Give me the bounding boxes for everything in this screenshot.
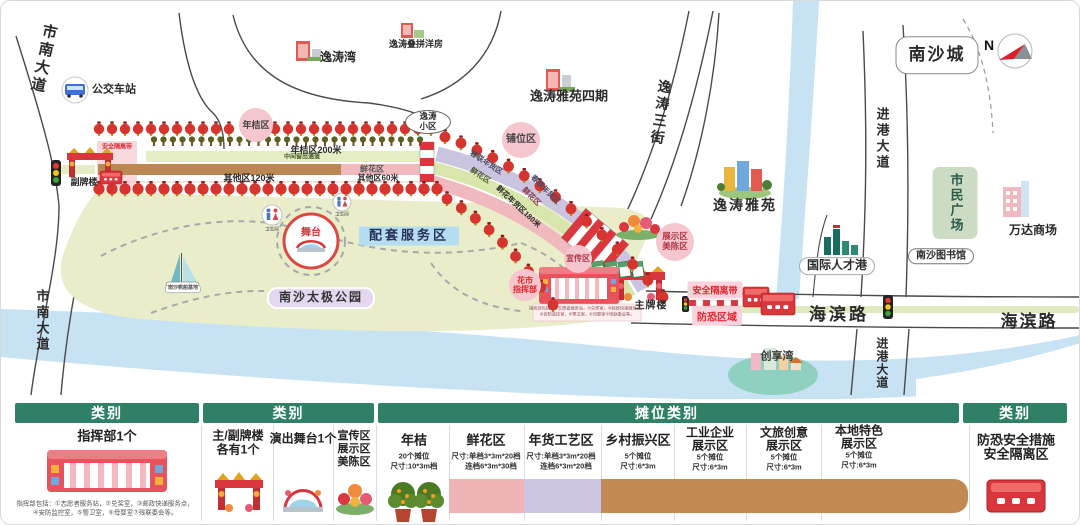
legend-header-2: 类别 — [203, 403, 374, 423]
legend-header-1: 类别 — [15, 403, 199, 423]
legend-note-line1: 指挥部包括：①志愿者服务站，②兑奖室，③邮政快递服务点， — [17, 499, 194, 508]
safety-belt-label-west: 安全隔离带 — [102, 145, 132, 152]
flower-market-map-page: 市南大道 市南大道 逸涛三街 进港大道 进港大道 海滨路 海滨路 公交车站 逸涛… — [0, 0, 1080, 525]
compass-n-label: N — [984, 37, 994, 53]
hq-note-line2: ④安防监控室，⑤警卫室，⑥母婴室⑦残联委会等。 — [540, 313, 635, 318]
legend-stall-flower-title: 鲜花区 — [466, 430, 505, 449]
publicity-zone-circle: 宣传区 — [564, 245, 592, 273]
talent-port-label: 国际人才港 — [799, 257, 875, 275]
wanda-mall-label: 万达商场 — [1009, 224, 1057, 238]
river-north — [776, 1, 819, 299]
legend-divider — [376, 425, 377, 521]
bus-station-label: 公交车站 — [92, 84, 136, 97]
legend-stall-rural-line2: 尺寸:6*3m — [620, 461, 655, 472]
striped-barrier-west — [420, 142, 434, 190]
secondary-archway-label: 副牌楼 — [70, 177, 97, 187]
legend-zones-line3: 美陈区 — [338, 453, 371, 469]
hq-circle: 花市 指挥部 — [509, 269, 541, 301]
road-label-jingang-north: 进港大道 — [874, 107, 889, 171]
legend: 类别 类别 摊位类别 类别 指挥部1个 指挥部包括：①志愿者服务站，②兑奖室，③… — [1, 399, 1080, 525]
toilet-label: 卫生间 — [335, 211, 349, 216]
hq-circle-line2: 指挥部 — [513, 285, 537, 294]
map-area: 市南大道 市南大道 逸涛三街 进港大道 进港大道 海滨路 海滨路 公交车站 逸涛… — [1, 1, 1080, 401]
legend-header-4: 类别 — [963, 403, 1067, 423]
legend-zones-icon — [334, 473, 376, 517]
compass-icon — [998, 34, 1032, 68]
stage-label: 舞台 — [301, 227, 321, 239]
legend-stage-title: 演出舞台1个 — [270, 430, 337, 447]
road-label-haibin-2: 海滨路 — [1001, 312, 1058, 332]
legend-stall-industry-line2: 尺寸:6*3m — [692, 462, 727, 473]
goods-zone-swatch — [524, 479, 601, 513]
kumquat-zone-circle: 年桔区 — [239, 108, 273, 142]
yitao-xiaoqu-oval: 逸涛 小区 — [405, 110, 451, 134]
yitao-bay-label: 逸涛湾 — [320, 51, 356, 65]
middle-passage-label: 中间留出通道 — [284, 155, 320, 162]
legend-archway-subtitle: 各有1个 — [217, 441, 260, 458]
legend-stall-local-line2: 尺寸:6*3m — [841, 460, 876, 471]
toilet-label: 卫生间 — [265, 226, 279, 231]
chuangxiang-bay-label: 创享湾 — [761, 351, 794, 364]
toilet-icon — [333, 193, 351, 211]
other-120m-label: 其他区120米 — [223, 173, 274, 183]
legend-stall-goods-title: 年货工艺区 — [528, 430, 593, 449]
legend-hq-title: 指挥部1个 — [77, 426, 136, 445]
yitao-phase4-label: 逸涛雅苑四期 — [530, 90, 608, 105]
antiterror-zone-box: 防恐区域 — [692, 307, 742, 326]
citizen-plaza-box: 市民广场 — [933, 167, 978, 239]
traffic-light-icon — [51, 160, 61, 186]
legend-stall-kumquat-title: 年桔 — [401, 430, 427, 449]
traffic-light-icon — [883, 295, 893, 319]
road-label-haibin-1: 海滨路 — [809, 305, 869, 325]
road-label-jingang-south: 进港大道 — [874, 337, 888, 389]
sailing-base-label: 南沙帆船基地 — [165, 285, 201, 293]
stall-zone-balloon: 铺位区 — [502, 122, 540, 158]
other-60m-label: 其他区60米 — [358, 173, 399, 182]
nansha-city-box: 南沙城 — [896, 36, 979, 74]
road-label-shinan-south: 市南大道 — [34, 289, 49, 353]
yitao-bay-building-icon — [296, 41, 321, 61]
talent-port-building-icon — [824, 225, 858, 255]
legend-security-line2: 安全隔离区 — [983, 444, 1048, 463]
display-decor-circle: 展示区 美陈区 — [656, 223, 694, 261]
legend-stall-flower-line2: 连档6*3m*30档 — [465, 461, 517, 472]
rural-other-swatch — [601, 479, 968, 513]
legend-archway-icon — [209, 466, 269, 516]
legend-divider — [201, 425, 202, 521]
hq-circle-line1: 花市 — [517, 276, 533, 285]
yitao-xiaoqu-line2: 小区 — [419, 122, 436, 132]
yitao-yayuan-building-icon — [717, 161, 772, 199]
legend-stall-goods-line2: 连档6*3m*20档 — [540, 461, 592, 472]
nansha-library-label: 南沙图书馆 — [908, 248, 974, 264]
legend-stage-icon — [279, 475, 327, 517]
taiji-park-label: 南沙太极公园 — [267, 287, 375, 309]
safety-belt-box-east: 安全隔离带 — [687, 282, 742, 299]
legend-note-line2: ④安防监控室，⑤警卫室，⑥母婴室⑦残联委会等。 — [33, 508, 177, 517]
legend-divider — [969, 425, 970, 521]
legend-stall-rural-title: 乡村振兴区 — [605, 430, 670, 449]
flower-zone-label-h: 鲜花区 — [360, 164, 384, 173]
legend-security-barrier-icon — [983, 474, 1049, 518]
legend-kumquat-icon — [385, 469, 447, 525]
yitao-townhouse-label: 逸涛叠拼洋房 — [389, 39, 443, 49]
flower-zone-swatch — [449, 479, 524, 513]
legend-header-3: 摊位类别 — [378, 403, 959, 423]
yitao-townhouse-building-icon — [401, 23, 424, 38]
bus-station-icon — [62, 77, 88, 103]
wanda-building-icon — [1003, 181, 1029, 217]
toilet-icon — [262, 205, 282, 225]
support-service-label: 配套服务区 — [359, 227, 459, 246]
decor-zone-label: 美陈区 — [662, 242, 688, 252]
legend-stall-culture-line2: 尺寸:6*3m — [766, 462, 801, 473]
legend-hq-icon — [42, 446, 172, 496]
yitao-yayuan-label: 逸涛雅苑 — [713, 197, 777, 213]
stage-icon — [284, 214, 338, 268]
